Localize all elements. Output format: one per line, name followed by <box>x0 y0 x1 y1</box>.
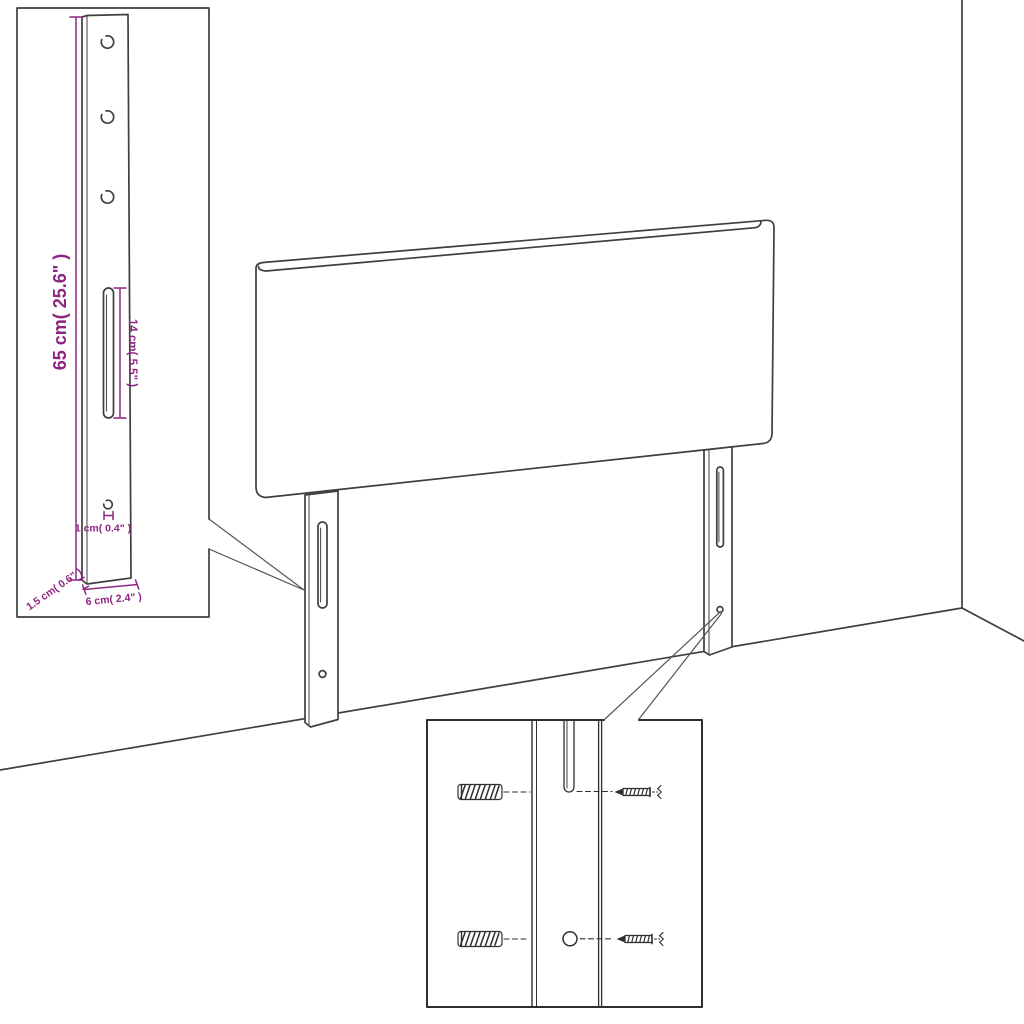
floor-line-left <box>0 608 962 770</box>
right-leg-slot <box>717 467 724 547</box>
left-leg-slot <box>318 522 327 608</box>
callout-line-inset-left <box>605 614 719 720</box>
callout-lines-detail-panel <box>209 519 304 590</box>
hardware-detail-inset <box>427 720 702 1007</box>
leg-detail-panel: 65 cm( 25.6" ) 14 cm( 5.5" ) 1 cm( 0.4" … <box>17 8 209 617</box>
diagram-canvas: 65 cm( 25.6" ) 14 cm( 5.5" ) 1 cm( 0.4" … <box>0 0 1024 1024</box>
wall-plug-bottom <box>458 932 502 947</box>
screw-top <box>615 786 662 799</box>
screw-bottom <box>617 933 664 946</box>
dimension-leg-height: 65 cm( 25.6" ) <box>50 17 82 580</box>
dimension-leg-thickness-label: 1.5 cm( 0.6" ) <box>24 566 84 613</box>
detail-leg-slot <box>104 288 114 418</box>
headboard-panel <box>256 220 774 497</box>
inset-screw-hole <box>563 932 577 946</box>
dimension-leg-height-line <box>70 17 82 580</box>
headboard-assembly-diagram: 65 cm( 25.6" ) 14 cm( 5.5" ) 1 cm( 0.4" … <box>0 0 1024 1024</box>
left-mounting-leg <box>305 491 338 727</box>
headboard-outline <box>256 220 774 497</box>
right-leg-screw-hole <box>717 607 723 613</box>
inset-fixing-row-bottom <box>458 932 663 947</box>
dimension-slot-length-label: 14 cm( 5.5" ) <box>126 319 138 387</box>
dimension-leg-thickness: 1.5 cm( 0.6" ) <box>24 566 88 613</box>
inset-leg-edge <box>532 720 602 1007</box>
floor-line-right <box>962 608 1024 641</box>
inset-fixing-row-top <box>458 785 661 800</box>
left-leg-screw-hole <box>319 671 326 678</box>
callout-line-inset-right <box>639 614 722 720</box>
wall-plug-top <box>458 785 502 800</box>
inset-slot <box>564 720 574 792</box>
dimension-leg-height-label: 65 cm( 25.6" ) <box>50 254 70 371</box>
dimension-leg-width-label: 6 cm( 2.4" ) <box>85 591 142 608</box>
dimension-bottom-hole-label: 1 cm( 0.4" ) <box>75 523 131 535</box>
